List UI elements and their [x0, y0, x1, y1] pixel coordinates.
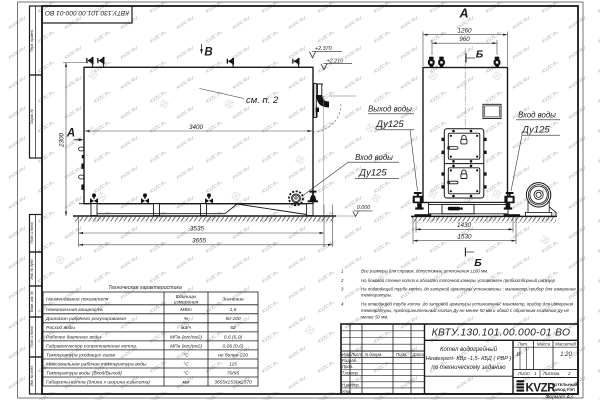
svg-text:Формат А3: Формат А3 [545, 395, 573, 400]
svg-text:Лит.: Лит. [517, 341, 529, 346]
svg-text:Вход воды: Вход воды [518, 111, 556, 120]
svg-text:Утв.: Утв. [342, 389, 352, 394]
svg-text:Пров.: Пров. [342, 364, 353, 369]
svg-text:температуры.: температуры. [361, 293, 392, 298]
svg-text:2300: 2300 [59, 133, 66, 149]
svg-text:МПа (кгс/см2): МПа (кгс/см2) [170, 343, 202, 349]
svg-text:1430: 1430 [457, 222, 472, 229]
svg-text:В: В [204, 47, 212, 59]
svg-text:На отводящей трубе котла ,до з: На отводящей трубе котла ,до запорной ар… [361, 302, 574, 307]
svg-text:1,5: 1,5 [230, 307, 237, 313]
svg-text:А: А [458, 7, 468, 21]
svg-text:2: 2 [567, 371, 571, 376]
svg-text:менее 50 мм.: менее 50 мм. [361, 315, 388, 320]
svg-text:Единицы: Единицы [176, 294, 197, 300]
svg-text:по техническому заданию: по техническому заданию [431, 365, 506, 371]
svg-text:Б: Б [476, 49, 484, 61]
svg-text:Лист: Лист [350, 352, 362, 357]
svg-text:А: А [66, 128, 75, 140]
svg-text:Ду125: Ду125 [521, 125, 550, 136]
svg-text:1260: 1260 [457, 28, 472, 35]
svg-text:КВТУ.130.101.00.000-01 ВО: КВТУ.130.101.00.000-01 ВО [432, 328, 571, 339]
svg-text:Перв. примен.: Перв. примен. [30, 29, 34, 52]
svg-text:115: 115 [229, 361, 237, 367]
svg-text:Температура воды (Вход/Выход): Температура воды (Вход/Выход) [46, 370, 122, 376]
svg-text:Все размеры для справок, допус: Все размеры для справок, допустимые откл… [361, 269, 488, 274]
svg-text:960: 960 [459, 36, 470, 43]
svg-text:Значение: Значение [222, 297, 244, 303]
svg-text:см. п. 2: см. п. 2 [246, 95, 279, 106]
svg-text:Ду125: Ду125 [358, 168, 387, 179]
svg-text:0,6 (6,0): 0,6 (6,0) [224, 334, 243, 340]
svg-text:м3/ч: м3/ч [181, 325, 191, 331]
svg-text:Выход воды: Выход воды [368, 105, 412, 114]
svg-text:Взам. инв. №: Взам. инв. № [30, 291, 34, 312]
svg-text:Лист: Лист [517, 371, 530, 376]
svg-text:Диапазон рабочего регулировани: Диапазон рабочего регулирования [45, 316, 126, 322]
svg-text:Подп.: Подп. [396, 352, 407, 357]
svg-text:ЗАВОД РЭП: ЗАВОД РЭП [552, 387, 575, 392]
svg-text:Т.контр.: Т.контр. [342, 370, 359, 375]
svg-text:4.: 4. [341, 302, 345, 307]
svg-text:На подводящей трубе котла, д: На подводящей трубе котла, до запорной а… [361, 287, 576, 292]
svg-text:0.000: 0.000 [357, 205, 371, 211]
svg-text:измерения: измерения [174, 300, 199, 305]
svg-text:Листов: Листов [542, 371, 560, 376]
svg-text:Максимальная рабочая температу: Максимальная рабочая температура воды [46, 361, 147, 367]
svg-text:3400: 3400 [189, 124, 204, 131]
svg-text:Подп. и дата: Подп. и дата [30, 222, 34, 243]
svg-text:МВт: МВт [180, 307, 191, 313]
svg-text:°С: °С [183, 370, 189, 376]
svg-text:температуры, предохранительный: температуры, предохранительный клапан Ду… [361, 308, 570, 313]
svg-text:3535: 3535 [190, 226, 205, 233]
svg-text:На боковой стенке котла в обла: На боковой стенке котла в области топочн… [361, 278, 556, 283]
svg-text:Дата: Дата [412, 352, 425, 357]
svg-text:Вход воды: Вход воды [355, 153, 393, 162]
svg-text:Подп. и дата: Подп. и дата [30, 326, 34, 347]
svg-text:Рабочее давление воды: Рабочее давление воды [46, 334, 101, 340]
svg-text:Номинальная мощность: Номинальная мощность [46, 307, 104, 313]
svg-text:Котел водогрейный: Котел водогрейный [440, 346, 498, 353]
svg-text:Температура уходящих газов: Температура уходящих газов [46, 352, 115, 358]
svg-text:Ду125: Ду125 [375, 119, 404, 130]
svg-text:Б: Б [474, 257, 482, 269]
svg-text:0,06 (0,6): 0,06 (0,6) [223, 343, 244, 349]
svg-text:И: И [517, 352, 521, 358]
svg-text:Техническая характеристика: Техническая характеристика [108, 285, 182, 291]
svg-text:Масштаб: Масштаб [555, 341, 576, 346]
svg-text:°С: °С [183, 352, 189, 358]
svg-text:Справ. №: Справ. № [30, 108, 34, 124]
svg-text:Инв. № дубл.: Инв. № дубл. [30, 259, 34, 280]
svg-text:%: % [184, 316, 189, 322]
svg-text:70/95: 70/95 [227, 370, 240, 376]
svg-text:N докум.: N докум. [365, 352, 382, 357]
svg-text:52: 52 [230, 325, 236, 331]
svg-text:Габариты котла (длина х ширина: Габариты котла (длина х ширина х высота) [46, 379, 150, 385]
svg-text:МПа (кгс/см2): МПа (кгс/см2) [170, 334, 202, 340]
svg-text:Изм.: Изм. [342, 352, 351, 357]
svg-text:3655: 3655 [192, 237, 207, 244]
svg-text:Масса: Масса [537, 341, 551, 346]
svg-text:КВТУ.130.101.00.000-01 ВО: КВТУ.130.101.00.000-01 ВО [45, 9, 129, 16]
svg-text:не более 220: не более 220 [218, 352, 248, 358]
svg-text:1:20: 1:20 [560, 352, 572, 358]
svg-text:Heatexpert- КВр -1,5- КБД ( РВ: Heatexpert- КВр -1,5- КБД ( РВР ) [426, 356, 512, 362]
svg-text:Разраб.: Разраб. [342, 358, 358, 363]
svg-text:Инв. № подл.: Инв. № подл. [30, 365, 34, 386]
svg-text:1530: 1530 [457, 233, 472, 240]
svg-text:Н.контр.: Н.контр. [342, 383, 360, 388]
svg-text:2: 2 [340, 278, 344, 283]
svg-text:Расход воды: Расход воды [46, 325, 75, 331]
svg-text:3655х1530х2370: 3655х1530х2370 [214, 379, 252, 385]
svg-text:Наименование показателя: Наименование показателя [46, 297, 109, 303]
svg-text:Гидравлическое сопротивление к: Гидравлическое сопротивление котла [46, 343, 136, 349]
svg-text:мм: мм [183, 380, 190, 385]
svg-text:50-100: 50-100 [225, 316, 241, 322]
svg-text:°С: °С [183, 361, 189, 367]
